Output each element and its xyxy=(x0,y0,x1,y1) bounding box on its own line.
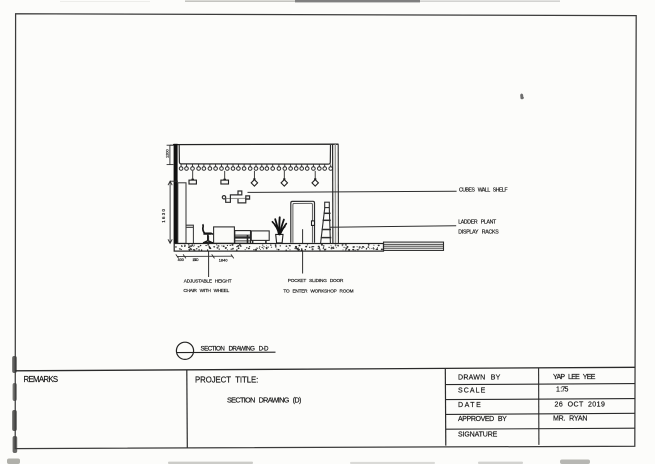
svg-text:YAP LEE YEE: YAP LEE YEE xyxy=(553,374,596,381)
svg-text:TO ENTER WORKSHOP ROOM: TO ENTER WORKSHOP ROOM xyxy=(283,288,354,293)
svg-text:MR. RYAN: MR. RYAN xyxy=(553,416,588,423)
svg-text:SIGNATURE: SIGNATURE xyxy=(458,431,498,438)
svg-text:SECTION DRAWING (D): SECTION DRAWING (D) xyxy=(227,396,302,405)
svg-text:400: 400 xyxy=(178,258,185,262)
svg-text:1 :75: 1 :75 xyxy=(556,387,569,394)
svg-text:1200: 1200 xyxy=(165,149,170,158)
svg-text:26 OCT 2019: 26 OCT 2019 xyxy=(555,402,606,409)
svg-text:REMARKS: REMARKS xyxy=(24,375,60,384)
svg-text:1630: 1630 xyxy=(161,208,166,222)
svg-text:CHAIR WITH WHEEL: CHAIR WITH WHEEL xyxy=(183,288,229,293)
svg-text:PROJECT TITLE:: PROJECT TITLE: xyxy=(195,376,259,385)
svg-text:DRAWN BY: DRAWN BY xyxy=(458,374,501,381)
svg-text:1840: 1840 xyxy=(219,258,228,262)
svg-text:DATE: DATE xyxy=(458,402,482,409)
svg-text:1500: 1500 xyxy=(192,258,198,262)
svg-text:CUBES WALL SHELF: CUBES WALL SHELF xyxy=(459,188,508,194)
svg-text:SCALE: SCALE xyxy=(458,387,486,394)
svg-text:ADJUSTABLE HEIGHT: ADJUSTABLE HEIGHT xyxy=(184,278,232,283)
svg-text:POCKET SLIDING DOOR: POCKET SLIDING DOOR xyxy=(288,278,344,283)
svg-text:LADDER PLANT: LADDER PLANT xyxy=(458,219,497,225)
svg-text:APPROVED BY: APPROVED BY xyxy=(458,416,508,423)
svg-text:SECTION DRAWING D-D: SECTION DRAWING D-D xyxy=(201,345,270,352)
svg-text:DISPLAY RACKS: DISPLAY RACKS xyxy=(458,229,499,235)
